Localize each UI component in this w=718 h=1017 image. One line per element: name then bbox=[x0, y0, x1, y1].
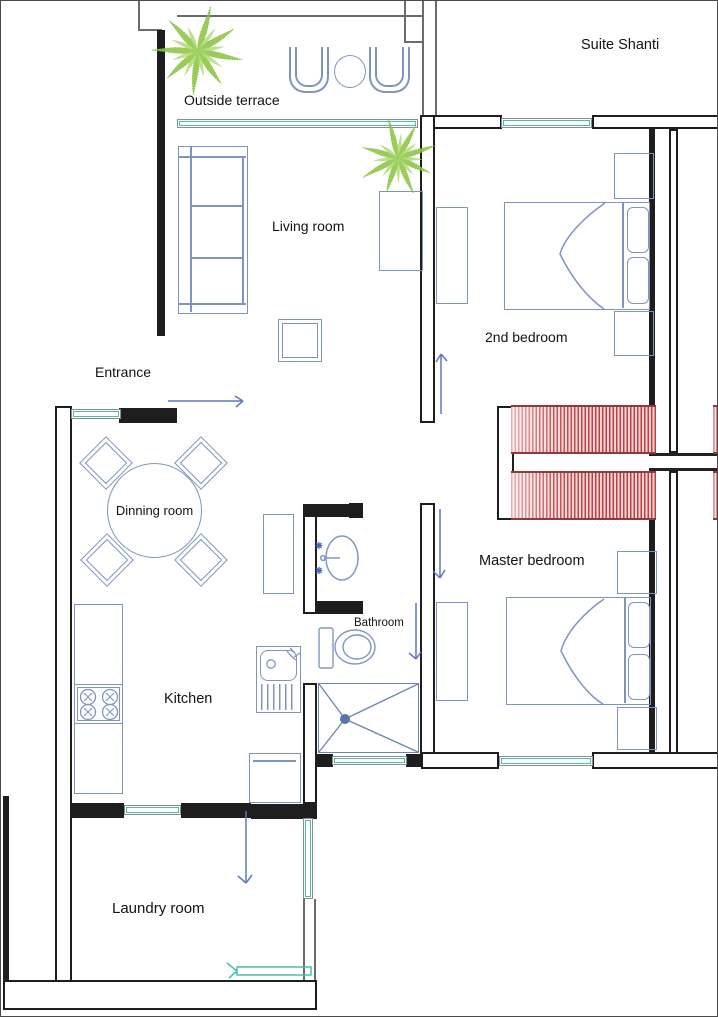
terrace-edge-line bbox=[422, 1, 424, 115]
window-2nd-bedroom bbox=[501, 118, 592, 128]
master-bed bbox=[506, 597, 651, 705]
terrace-chair-right bbox=[369, 47, 410, 93]
bed2-wardrobe bbox=[436, 207, 468, 304]
laundry-edge-line bbox=[314, 899, 316, 981]
wall-master-bottom-right bbox=[592, 752, 718, 769]
bed2-door-swing bbox=[436, 354, 447, 414]
terrace-chair-left bbox=[289, 47, 329, 93]
terrace-table bbox=[334, 55, 366, 88]
stove bbox=[74, 684, 123, 724]
corridor-line bbox=[649, 453, 718, 456]
corridor-line bbox=[649, 468, 718, 471]
master-bedroom-label: Master bedroom bbox=[479, 553, 585, 569]
wall-bottom bbox=[3, 980, 317, 1010]
entrance-label: Entrance bbox=[95, 364, 151, 380]
window-entrance bbox=[71, 409, 121, 419]
bathroom-basin bbox=[321, 536, 358, 580]
shower-tray bbox=[318, 683, 419, 753]
wall-right-outer-bottom bbox=[669, 471, 678, 755]
wall-bed2-top-right bbox=[592, 115, 718, 129]
dinning-room-label: Dinning room bbox=[116, 503, 193, 518]
wall-laundry-top-a bbox=[71, 803, 124, 818]
window-living bbox=[177, 119, 418, 128]
living-room-label: Living room bbox=[272, 218, 344, 234]
closet-hatch-upper bbox=[511, 405, 656, 454]
dining-table: Dinning room bbox=[107, 463, 202, 558]
terrace-edge-line bbox=[435, 1, 437, 115]
floor-plan: Dinning room Suite Shanti Outside terrac… bbox=[0, 0, 718, 1017]
laundry-slider-arrow bbox=[227, 963, 311, 978]
wall-left-edge-low bbox=[3, 796, 9, 1009]
second-bedroom-label: 2nd bedroom bbox=[485, 329, 568, 345]
tv-cabinet bbox=[379, 191, 423, 271]
bed2 bbox=[504, 202, 650, 310]
master-nightstand-bottom bbox=[617, 707, 657, 750]
wall-bathroom-left-lower bbox=[303, 683, 317, 804]
wall-entrance bbox=[119, 408, 177, 423]
window-shower bbox=[332, 756, 407, 765]
bed2-nightstand-top bbox=[614, 153, 654, 199]
wall-mid-vertical-lower bbox=[420, 503, 435, 758]
toilet bbox=[319, 628, 375, 668]
kitchen-sink-unit bbox=[256, 646, 301, 713]
entrance-door-swing bbox=[168, 396, 243, 407]
laundry-door-swing bbox=[238, 811, 252, 883]
dishwasher bbox=[249, 753, 301, 803]
kitchen-counter-right-upper bbox=[263, 514, 294, 594]
wall-left-tall bbox=[55, 406, 72, 1010]
wall-right-outer-top bbox=[669, 129, 678, 453]
wall-shower-bottom-right bbox=[406, 754, 421, 767]
window-master bbox=[499, 756, 593, 766]
terrace-edge-line bbox=[404, 1, 406, 41]
wall-shower-bottom-left bbox=[317, 754, 333, 767]
master-wardrobe bbox=[436, 602, 468, 701]
wall-laundry-top-b bbox=[181, 803, 251, 818]
terrace-edge-line bbox=[404, 41, 423, 43]
closet-hatch-upper-neighbor bbox=[713, 405, 718, 454]
kitchen-label: Kitchen bbox=[164, 691, 212, 707]
laundry-room-label: Laundry room bbox=[112, 900, 205, 917]
closet-hatch-lower bbox=[511, 471, 656, 520]
outside-terrace-label: Outside terrace bbox=[184, 92, 280, 108]
wall-bathroom-top bbox=[304, 504, 350, 517]
terrace-edge-line bbox=[138, 1, 140, 31]
wall-bathroom-left-upper bbox=[303, 504, 317, 614]
master-nightstand-top bbox=[617, 551, 657, 594]
wall-bathroom-stub bbox=[315, 601, 363, 614]
wall-living-left bbox=[157, 30, 165, 336]
sofa bbox=[178, 146, 248, 314]
suite-title: Suite Shanti bbox=[581, 37, 659, 53]
terrace-edge-line bbox=[177, 15, 423, 17]
window-kitchen bbox=[124, 805, 181, 815]
laundry-edge-line bbox=[303, 899, 305, 981]
window-laundry bbox=[303, 818, 313, 899]
wall-master-bottom-left bbox=[421, 752, 499, 769]
wall-bathroom-top-block bbox=[349, 503, 363, 518]
coffee-table bbox=[278, 319, 322, 362]
closet-hatch-lower-neighbor bbox=[713, 471, 718, 520]
wall-laundry-corner bbox=[251, 804, 317, 819]
bathroom-label: Bathroom bbox=[354, 617, 404, 629]
bed2-nightstand-bottom bbox=[614, 311, 654, 356]
